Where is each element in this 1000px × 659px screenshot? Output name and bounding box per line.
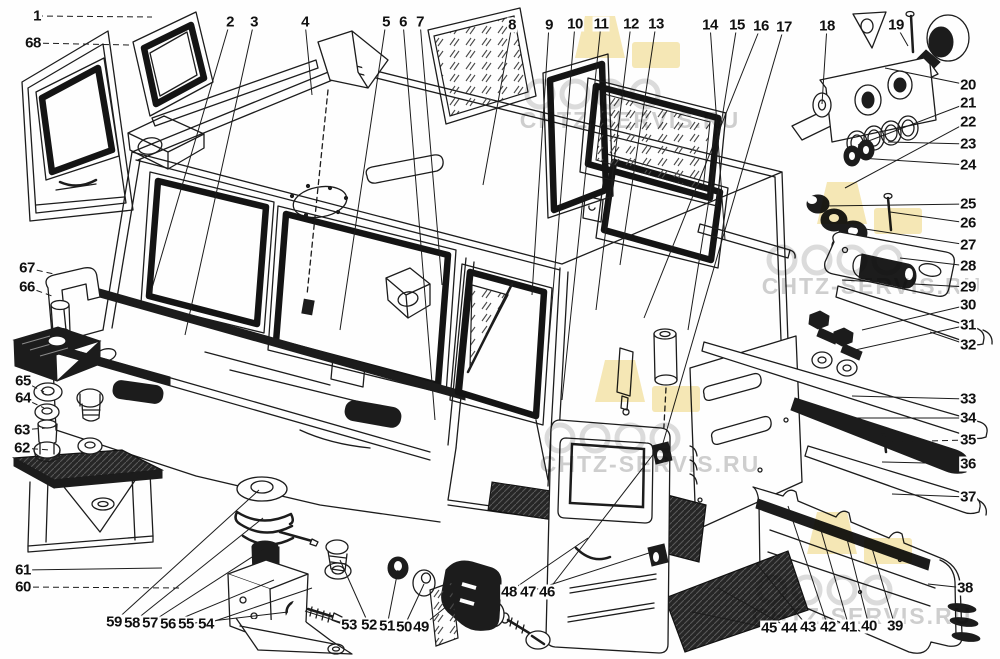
part-callout-4: 4: [300, 15, 310, 30]
part-callout-53: 53: [340, 618, 358, 633]
part-callout-18: 18: [818, 19, 836, 34]
part-callout-61: 61: [14, 563, 32, 578]
part-callout-6: 6: [398, 15, 408, 30]
part-callout-36: 36: [959, 457, 977, 472]
part-callout-57: 57: [141, 616, 159, 631]
part-callout-65: 65: [14, 374, 32, 389]
part-callout-34: 34: [959, 411, 977, 426]
part-callout-11: 11: [593, 17, 610, 32]
part-callout-64: 64: [14, 391, 32, 406]
part-callout-67: 67: [18, 261, 36, 276]
part-callout-31: 31: [959, 318, 977, 333]
part-callout-46: 46: [538, 585, 556, 600]
part-callout-17: 17: [775, 20, 793, 35]
part-callout-1: 1: [32, 9, 42, 24]
part-callout-14: 14: [701, 18, 719, 33]
part-callout-13: 13: [647, 17, 665, 32]
part-callout-19: 19: [887, 18, 905, 33]
part-callout-10: 10: [566, 17, 584, 32]
part-callout-37: 37: [959, 490, 977, 505]
part-callout-48: 48: [500, 585, 518, 600]
part-callout-35: 35: [959, 433, 977, 448]
part-callout-7: 7: [415, 15, 425, 30]
part-callout-50: 50: [395, 620, 413, 635]
part-callout-44: 44: [780, 621, 798, 636]
part-callout-27: 27: [959, 238, 977, 253]
part-callout-24: 24: [959, 158, 977, 173]
part-callout-68: 68: [24, 36, 42, 51]
part-callout-33: 33: [959, 392, 977, 407]
part-callout-30: 30: [959, 298, 977, 313]
part-callout-54: 54: [197, 617, 215, 632]
part-callout-55: 55: [177, 617, 195, 632]
part-callout-38: 38: [956, 581, 974, 596]
part-callout-20: 20: [959, 78, 977, 93]
part-callout-32: 32: [959, 338, 977, 353]
part-callout-52: 52: [360, 618, 378, 633]
part-callout-41: 41: [840, 620, 858, 635]
part-callout-5: 5: [381, 15, 391, 30]
part-callout-8: 8: [507, 18, 517, 33]
part-callout-12: 12: [622, 17, 640, 32]
part-callout-26: 26: [959, 216, 977, 231]
part-callout-45: 45: [760, 621, 778, 636]
part-callout-63: 63: [13, 423, 31, 438]
part-callout-16: 16: [752, 19, 770, 34]
part-callout-3: 3: [249, 15, 259, 30]
part-callout-21: 21: [959, 96, 977, 111]
part-callout-40: 40: [860, 619, 878, 634]
part-callout-60: 60: [14, 580, 32, 595]
part-callout-29: 29: [959, 280, 977, 295]
part-callout-58: 58: [123, 616, 141, 631]
part-callout-28: 28: [959, 259, 977, 274]
part-callout-22: 22: [959, 115, 977, 130]
part-callout-2: 2: [225, 15, 235, 30]
part-callout-39: 39: [886, 619, 904, 634]
part-callout-49: 49: [412, 620, 430, 635]
part-callout-51: 51: [378, 619, 396, 634]
part-callout-47: 47: [519, 585, 537, 600]
callout-labels: 1234567891011121314151617181920212223242…: [0, 0, 1000, 659]
part-callout-42: 42: [819, 620, 837, 635]
part-callout-9: 9: [544, 18, 554, 33]
part-callout-23: 23: [959, 137, 977, 152]
part-callout-15: 15: [728, 18, 746, 33]
part-callout-56: 56: [159, 617, 177, 632]
part-callout-25: 25: [959, 197, 977, 212]
part-callout-43: 43: [799, 620, 817, 635]
exploded-diagram: CHTZ-SERVIS.RUCHTZ-SERVIS.RUCHTZ-SERVIS.…: [0, 0, 1000, 659]
part-callout-59: 59: [105, 615, 123, 630]
part-callout-66: 66: [18, 280, 36, 295]
part-callout-62: 62: [13, 441, 31, 456]
